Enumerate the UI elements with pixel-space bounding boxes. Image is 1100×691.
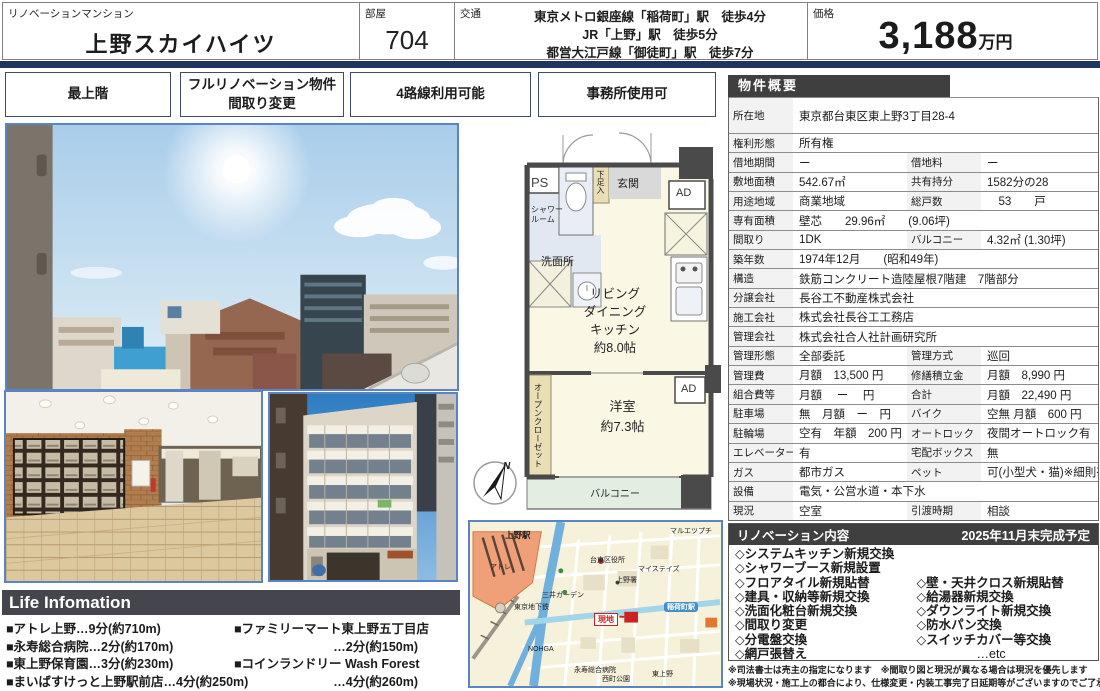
badge-line-2-1: フルリノベーション物件 xyxy=(188,76,336,94)
table-label: 宅配ボックス xyxy=(907,444,981,462)
renovation-item: …etc xyxy=(917,647,1099,661)
table-value: 無 xyxy=(981,444,1098,462)
renovation-body: ◇システムキッチン新規交換◇シャワーブース新規設置◇フロアタイル新規貼替◇建具・… xyxy=(729,545,1098,661)
footnote-2: ※現場状況・施工上の都合により、仕様変更・内装工事完了日延期等がございますのでご… xyxy=(728,677,1100,690)
balcony-view-image xyxy=(7,125,457,389)
renovation-item: ◇給湯器新規交換 xyxy=(917,590,1099,604)
transit-line-1: 東京メトロ銀座線「稲荷町」駅 徒歩4分 xyxy=(497,8,803,26)
table-value: 有 xyxy=(793,444,907,462)
life-info-item: …2分(約150m) xyxy=(234,639,460,657)
table-label: 間取り xyxy=(729,231,793,249)
map-police-label: 上野署 xyxy=(616,575,637,585)
table-value: 1974年12月 (昭和49年) xyxy=(793,250,1098,268)
life-info-item: ■永寿総合病院…2分(約170m) xyxy=(6,639,234,657)
table-row: 借地期間ー借地料ー xyxy=(729,152,1098,171)
table-label: 権利形態 xyxy=(729,134,793,152)
floorplan-washroom-label: 洗面所 xyxy=(541,253,574,269)
room-number: 704 xyxy=(360,25,454,56)
table-row: 施工会社株式会社長谷工工務店 xyxy=(729,307,1098,326)
table-value: 巡回 xyxy=(981,347,1098,365)
renovation-item xyxy=(917,547,1099,561)
table-label: 共有持分 xyxy=(907,173,981,191)
table-label: 施工会社 xyxy=(729,308,793,326)
badge-full-renovation: フルリノベーション物件間取り変更 xyxy=(180,72,344,117)
table-value: 長谷工不動産株式会社 xyxy=(793,289,1098,307)
table-value: 電気・公営水道・本下水 xyxy=(793,482,1098,500)
category-label: リノベーションマンション xyxy=(8,6,134,21)
table-label: バイク xyxy=(907,405,981,423)
table-label: 借地期間 xyxy=(729,153,793,171)
table-row: ガス都市ガスペット可(小型犬・猫)※細則有 xyxy=(729,462,1098,481)
renovation-item: ◇壁・天井クロス新規貼替 xyxy=(917,576,1099,590)
location-map: 上野駅 アトレ 東京地下鉄 三井ガーデン 台東区役所 上野署 マイステイズ マル… xyxy=(468,520,723,688)
renovation-item: ◇スイッチカバー等交換 xyxy=(917,633,1099,647)
table-label: 設備 xyxy=(729,482,793,500)
renovation-item: ◇ダウンライト新規交換 xyxy=(917,604,1099,618)
map-atre-label: アトレ xyxy=(490,562,511,572)
floorplan-closet-label: オープンクローゼット xyxy=(532,383,544,468)
renovation-panel: リノベーション内容 2025年11月末完成予定 ◇システムキッチン新規交換◇シャ… xyxy=(728,523,1099,661)
table-label: 現況 xyxy=(729,502,793,520)
table-label: 構造 xyxy=(729,269,793,287)
table-value: 月額 ー 円 xyxy=(793,385,907,403)
table-row: 現況空室引渡時期相談 xyxy=(729,501,1098,520)
table-label: 駐車場 xyxy=(729,405,793,423)
floorplan-ad-mid-label: AD xyxy=(681,383,696,395)
floorplan-shoebox-label: 下足入 xyxy=(595,170,606,194)
table-row: 間取り1DKバルコニー4.32㎡ (1.30坪) xyxy=(729,230,1098,249)
map-subway-label: 東京地下鉄 xyxy=(514,602,549,612)
table-value: 53 戸 xyxy=(981,192,1098,210)
floorplan-bedroom-label: 洋室 約7.3帖 xyxy=(565,397,680,436)
table-label: 合計 xyxy=(907,385,981,403)
transit-line-2: JR「上野」駅 徒歩5分 xyxy=(497,26,803,44)
life-info-left-column: ■アトレ上野…9分(約710m)■永寿総合病院…2分(約170m)■東上野保育園… xyxy=(2,621,234,691)
renovation-item: ◇分電盤交換 xyxy=(735,633,917,647)
table-label: 引渡時期 xyxy=(907,502,981,520)
property-name: 上野スカイハイツ xyxy=(3,27,359,59)
lobby-image xyxy=(6,392,261,581)
floorplan-ps-label: PS xyxy=(531,175,548,190)
transit-line-3: 都営大江戸線「御徒町」駅 徒歩7分 xyxy=(497,44,803,62)
table-value: 月額 22,490 円 xyxy=(981,385,1098,403)
map-inaricho-station-label: 稲荷町駅 xyxy=(664,602,698,612)
table-label: 管理方式 xyxy=(907,347,981,365)
map-taito-ward-label: 台東区役所 xyxy=(590,555,625,565)
map-nohga-label: NOHGA xyxy=(528,646,554,653)
property-name-cell: リノベーションマンション 上野スカイハイツ xyxy=(2,2,360,60)
table-label: 分譲会社 xyxy=(729,289,793,307)
renovation-item: ◇防水パン交換 xyxy=(917,618,1099,632)
renovation-item xyxy=(917,561,1099,575)
table-value: 夜間オートロック有 xyxy=(981,424,1098,442)
table-value: 所有権 xyxy=(793,134,1098,152)
table-value: 全部委託 xyxy=(793,347,907,365)
overview-table: 所在地東京都台東区東上野3丁目28-4権利形態所有権借地期間ー借地料ー敷地面積5… xyxy=(728,97,1099,521)
table-value: 空無 月額 600 円 xyxy=(981,405,1098,423)
table-value: 壁芯 29.96㎡ (9.06坪) xyxy=(793,211,1098,229)
life-info-section: Life Infomation ■アトレ上野…9分(約710m)■永寿総合病院…… xyxy=(2,590,460,691)
table-label: オートロック xyxy=(907,424,981,442)
life-info-item: ■東上野保育園…3分(約230m) xyxy=(6,656,234,674)
badge-office-use: 事務所使用可 xyxy=(538,72,716,117)
footnotes: ※司法書士は売主の指定になります ※間取り図と現況が異なる場合は現況を優先します… xyxy=(728,664,1100,689)
badge-line-1-1: 最上階 xyxy=(68,85,109,103)
header-row: リノベーションマンション 上野スカイハイツ 部屋 704 交通 東京メトロ銀座線… xyxy=(2,2,1098,60)
price-unit: 万円 xyxy=(979,33,1013,52)
map-ueno-station-label: 上野駅 xyxy=(505,529,531,541)
table-label: 修繕積立金 xyxy=(907,366,981,384)
table-value: 鉄筋コンクリート造陸屋根7階建 7階部分 xyxy=(793,269,1098,287)
table-value: 月額 13,500 円 xyxy=(793,366,907,384)
table-row: 設備電気・公営水道・本下水 xyxy=(729,481,1098,500)
renovation-left-column: ◇システムキッチン新規交換◇シャワーブース新規設置◇フロアタイル新規貼替◇建具・… xyxy=(735,547,917,661)
badge-line-2-2: 間取り変更 xyxy=(228,95,296,113)
map-nishimachi-park-label: 西町公園 xyxy=(602,674,630,684)
balcony-view-photo xyxy=(5,123,459,391)
table-value: 1DK xyxy=(793,231,907,249)
life-info-item: ■コインランドリー Wash Forest xyxy=(234,656,460,674)
table-label: 借地料 xyxy=(907,153,981,171)
table-value: 空室 xyxy=(793,502,907,520)
table-label: エレベーター xyxy=(729,444,793,462)
table-label: バルコニー xyxy=(907,231,981,249)
table-row: 管理形態全部委託管理方式巡回 xyxy=(729,346,1098,365)
transit-lines: 東京メトロ銀座線「稲荷町」駅 徒歩4分JR「上野」駅 徒歩5分都営大江戸線「御徒… xyxy=(497,8,803,62)
renovation-deadline: 2025年11月末完成予定 xyxy=(961,525,1090,544)
property-overview-panel: 物件概要 所在地東京都台東区東上野3丁目28-4権利形態所有権借地期間ー借地料ー… xyxy=(728,70,1099,521)
table-value: 株式会社長谷工工務店 xyxy=(793,308,1098,326)
renovation-item: ◇システムキッチン新規交換 xyxy=(735,547,917,561)
table-label: 管理形態 xyxy=(729,347,793,365)
divider-bar xyxy=(0,61,1100,68)
table-row: 組合費等月額 ー 円合計月額 22,490 円 xyxy=(729,384,1098,403)
renovation-item: ◇間取り変更 xyxy=(735,618,917,632)
floorplan-ad-top-label: AD xyxy=(676,187,691,199)
badge-line-3-1: 4路線利用可能 xyxy=(396,85,485,103)
map-maruetsu-label: マルエツプチ xyxy=(670,526,712,536)
room-cell: 部屋 704 xyxy=(360,2,455,60)
floorplan-shower-label: シャワー ルーム xyxy=(531,205,563,226)
table-value: 都市ガス xyxy=(793,463,907,481)
table-value: 空有 年額 200 円 xyxy=(793,424,907,442)
table-value: 東京都台東区東上野3丁目28-4 xyxy=(793,98,1098,133)
map-mitsui-label: 三井ガーデン xyxy=(542,590,584,600)
table-label: 駐輪場 xyxy=(729,424,793,442)
table-label: 築年数 xyxy=(729,250,793,268)
footnote-1: ※司法書士は売主の指定になります ※間取り図と現況が異なる場合は現況を優先します xyxy=(728,664,1100,677)
table-row: 権利形態所有権 xyxy=(729,133,1098,152)
renovation-header: リノベーション内容 2025年11月末完成予定 xyxy=(729,524,1098,545)
renovation-item: ◇洗面化粧台新規交換 xyxy=(735,604,917,618)
table-value: ー xyxy=(981,153,1098,171)
table-row: 駐車場無 月額 ー 円バイク空無 月額 600 円 xyxy=(729,404,1098,423)
table-value: 相談 xyxy=(981,502,1098,520)
table-label: 敷地面積 xyxy=(729,173,793,191)
table-row: 築年数1974年12月 (昭和49年) xyxy=(729,249,1098,268)
table-value: 可(小型犬・猫)※細則有 xyxy=(981,463,1098,481)
table-label: 専有面積 xyxy=(729,211,793,229)
lobby-photo xyxy=(4,390,263,583)
life-info-item: ■アトレ上野…9分(約710m) xyxy=(6,621,234,639)
renovation-title: リノベーション内容 xyxy=(737,525,849,544)
building-exterior-photo xyxy=(268,392,458,582)
table-row: 管理会社株式会社合人社計画研究所 xyxy=(729,326,1098,345)
renovation-item: ◇建具・収納等新規交換 xyxy=(735,590,917,604)
floorplan-balcony-label: バルコニー xyxy=(560,485,670,500)
table-label: ペット xyxy=(907,463,981,481)
life-info-right-column: ■ファミリーマート東上野五丁目店…2分(約150m)■コインランドリー Wash… xyxy=(234,621,460,691)
table-label: 総戸数 xyxy=(907,192,981,210)
life-info-body: ■アトレ上野…9分(約710m)■永寿総合病院…2分(約170m)■東上野保育園… xyxy=(2,615,460,691)
table-value: 1582分の28 xyxy=(981,173,1098,191)
renovation-item: ◇フロアタイル新規貼替 xyxy=(735,576,917,590)
price-cell: 価格 3,188万円 xyxy=(808,2,1098,60)
renovation-item: ◇網戸張替え xyxy=(735,647,917,661)
badge-line-4-1: 事務所使用可 xyxy=(587,85,668,103)
transit-cell: 交通 東京メトロ銀座線「稲荷町」駅 徒歩4分JR「上野」駅 徒歩5分都営大江戸線… xyxy=(455,2,808,60)
building-exterior-image xyxy=(270,394,456,580)
table-value: 無 月額 ー 円 xyxy=(793,405,907,423)
table-row: 分譲会社長谷工不動産株式会社 xyxy=(729,288,1098,307)
map-mystays-label: マイステイズ xyxy=(638,564,680,574)
floor-plan: PS シャワー ルーム 下足入 玄関 AD 洗面所 リビング ダイニング キッチ… xyxy=(465,125,725,517)
life-info-title: Life Infomation xyxy=(2,590,460,615)
table-label: 管理費 xyxy=(729,366,793,384)
renovation-item: ◇シャワーブース新規設置 xyxy=(735,561,917,575)
table-value: ー xyxy=(793,153,907,171)
floorplan-ldk-label: リビング ダイニング キッチン 約8.0帖 xyxy=(560,285,670,358)
table-row: 専有面積壁芯 29.96㎡ (9.06坪) xyxy=(729,210,1098,229)
map-site-marker: 現地 xyxy=(594,613,618,626)
badge-four-lines: 4路線利用可能 xyxy=(350,72,531,117)
table-value: 商業地域 xyxy=(793,192,907,210)
map-higashiueno-label: 東上野 xyxy=(652,669,673,679)
table-row: 所在地東京都台東区東上野3丁目28-4 xyxy=(729,97,1098,133)
price: 3,188万円 xyxy=(808,15,1083,58)
table-value: 月額 8,990 円 xyxy=(981,366,1098,384)
compass-north-label: N xyxy=(503,461,510,472)
table-row: 駐輪場空有 年額 200 円オートロック夜間オートロック有 xyxy=(729,423,1098,442)
table-row: 敷地面積542.67㎡共有持分1582分の28 xyxy=(729,172,1098,191)
table-row: 管理費月額 13,500 円修繕積立金月額 8,990 円 xyxy=(729,365,1098,384)
room-label: 部屋 xyxy=(365,6,386,21)
price-value: 3,188 xyxy=(878,15,978,57)
table-row: 構造鉄筋コンクリート造陸屋根7階建 7階部分 xyxy=(729,268,1098,287)
badge-top-floor: 最上階 xyxy=(5,72,171,117)
floorplan-entrance-label: 玄関 xyxy=(617,175,639,191)
table-value: 542.67㎡ xyxy=(793,173,907,191)
flyer-page: リノベーションマンション 上野スカイハイツ 部屋 704 交通 東京メトロ銀座線… xyxy=(0,0,1100,691)
table-label: ガス xyxy=(729,463,793,481)
table-row: エレベーター有宅配ボックス無 xyxy=(729,443,1098,462)
table-label: 組合費等 xyxy=(729,385,793,403)
life-info-item: …4分(約260m) xyxy=(234,674,460,691)
table-value: 株式会社合人社計画研究所 xyxy=(793,327,1098,345)
life-info-item: ■まいばすけっと上野駅前店…4分(約250m) xyxy=(6,674,234,691)
life-info-item: ■ファミリーマート東上野五丁目店 xyxy=(234,621,460,639)
table-label: 管理会社 xyxy=(729,327,793,345)
table-value: 4.32㎡ (1.30坪) xyxy=(981,231,1098,249)
table-label: 所在地 xyxy=(729,98,793,133)
renovation-right-column: ◇壁・天井クロス新規貼替◇給湯器新規交換◇ダウンライト新規交換◇防水パン交換◇ス… xyxy=(917,547,1099,661)
table-row: 用途地域商業地域総戸数 53 戸 xyxy=(729,191,1098,210)
table-label: 用途地域 xyxy=(729,192,793,210)
transit-label: 交通 xyxy=(460,6,481,21)
overview-title: 物件概要 xyxy=(728,75,950,97)
